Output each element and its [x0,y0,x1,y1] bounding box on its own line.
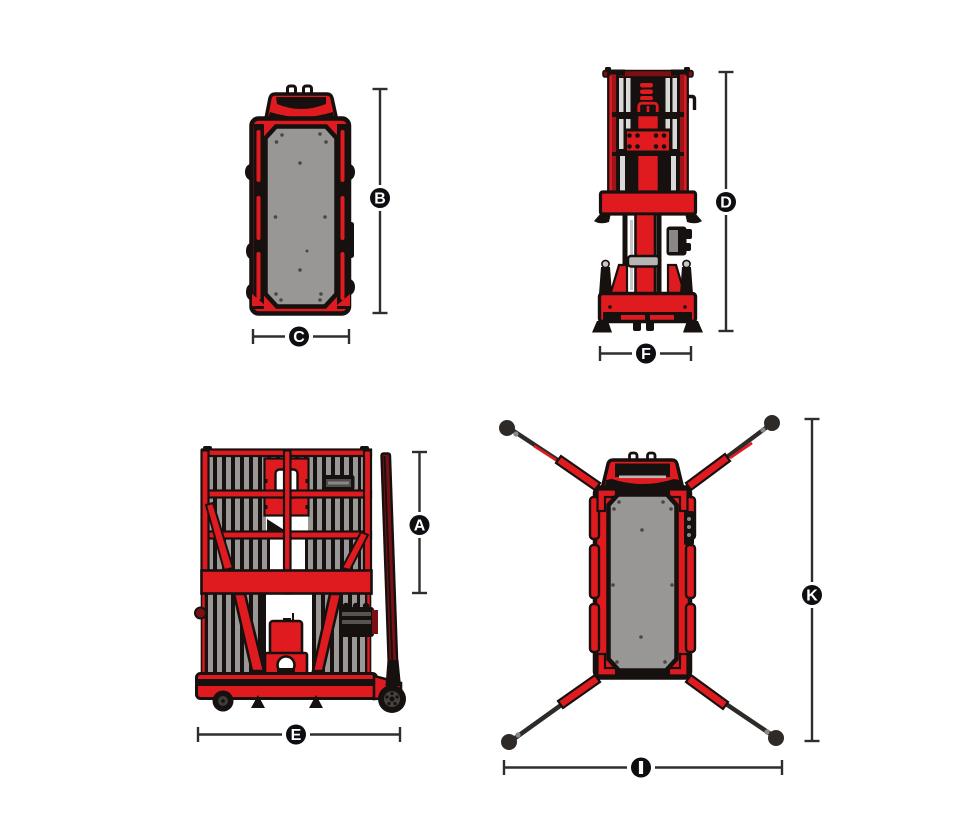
svg-text:D: D [720,195,732,212]
svg-text:E: E [291,727,302,744]
svg-text:F: F [641,346,651,363]
svg-text:A: A [414,518,426,535]
svg-text:B: B [374,191,386,208]
svg-text:K: K [806,588,818,605]
svg-text:C: C [293,329,305,346]
